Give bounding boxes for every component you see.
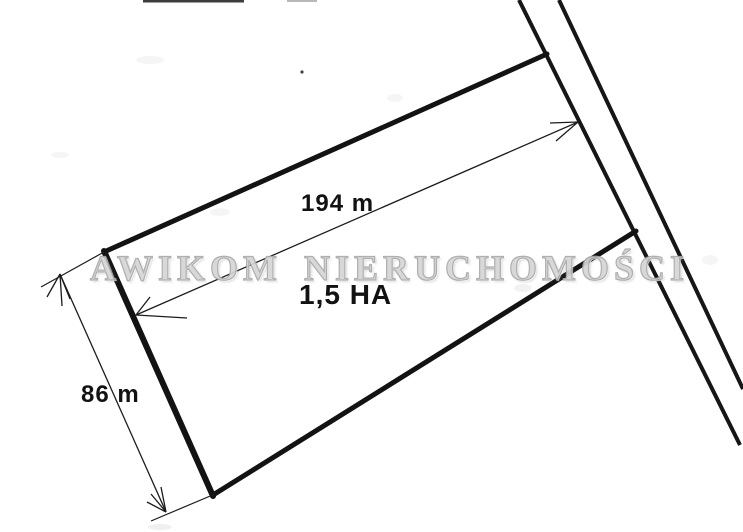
left-width-label: 86 m (81, 383, 140, 407)
arrowhead-top-icon (47, 274, 70, 306)
arrowhead-left-icon (136, 297, 187, 318)
plot-top-edge (104, 54, 547, 252)
area-label: 1,5 HA (299, 281, 392, 309)
extension-bottom-left (151, 494, 215, 521)
scan-artifacts (143, 0, 317, 74)
road-right-edge (559, 0, 743, 389)
plot-survey-sketch: AWIKOM NIERUCHOMOŚCI 194 m 1,5 HA 86 m (0, 0, 743, 532)
road-left-edge (519, 0, 740, 445)
top-length-label: 194 m (301, 192, 374, 216)
arrowhead-right-icon (550, 122, 578, 141)
road (519, 0, 743, 445)
